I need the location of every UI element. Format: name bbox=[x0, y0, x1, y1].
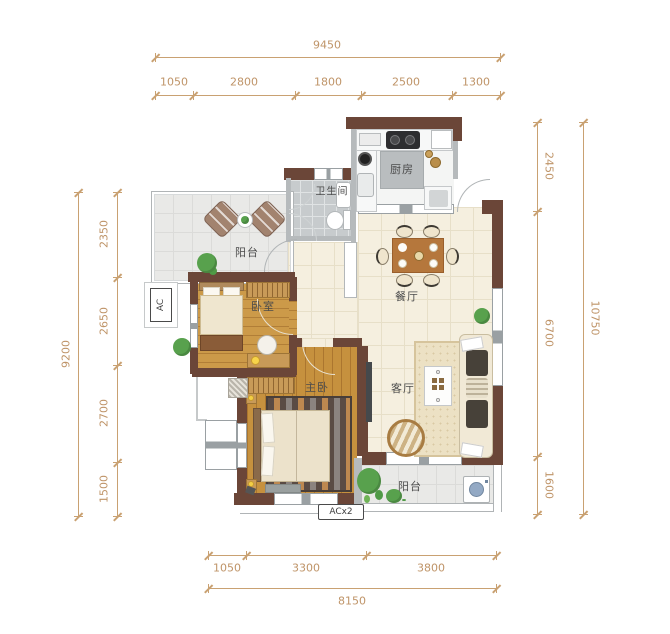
dim-line-bottom-total bbox=[208, 588, 496, 589]
plant bbox=[173, 338, 191, 356]
desk-lamp bbox=[251, 356, 260, 365]
wall bbox=[234, 493, 274, 505]
sofa-cushion bbox=[466, 350, 488, 376]
dining-chair bbox=[446, 248, 459, 265]
toilet-bowl bbox=[326, 211, 344, 230]
dim-label: 1500 bbox=[98, 475, 111, 503]
doormat bbox=[228, 378, 248, 398]
dim-label-bottom-total: 8150 bbox=[338, 595, 366, 608]
desk-chair bbox=[257, 335, 277, 355]
door-arc-kitchen bbox=[457, 179, 490, 212]
centerpiece-icon bbox=[414, 251, 424, 261]
sofa-cushion bbox=[466, 378, 488, 398]
dim-label: 2350 bbox=[98, 220, 111, 248]
bed-body bbox=[200, 295, 243, 335]
round-lounge-chair bbox=[387, 419, 425, 457]
dining-chair bbox=[423, 225, 440, 238]
dining-chair bbox=[423, 274, 440, 287]
wall bbox=[188, 272, 295, 282]
acx2-label: ACx2 bbox=[329, 507, 352, 517]
dim-label: 3300 bbox=[292, 562, 320, 575]
dim-label-left-total: 9200 bbox=[60, 340, 73, 368]
dim-label: 2650 bbox=[98, 307, 111, 335]
plant bbox=[357, 468, 381, 494]
master-bed-pillow bbox=[261, 446, 275, 477]
room-label-master: 主卧 bbox=[305, 379, 329, 395]
tv-panel bbox=[366, 362, 372, 422]
tv-cabinet bbox=[265, 484, 301, 493]
dim-label: 1800 bbox=[314, 76, 342, 89]
window bbox=[492, 288, 503, 386]
plate-icon bbox=[429, 259, 438, 268]
dining-chair bbox=[396, 274, 413, 287]
dim-label: 3800 bbox=[417, 562, 445, 575]
dim-label: 1050 bbox=[160, 76, 188, 89]
master-bed-pillow bbox=[261, 413, 275, 444]
window bbox=[237, 423, 247, 468]
wall bbox=[346, 117, 462, 129]
floor-plan: 阳台 卫生间 厨房 餐厅 卧室 主卧 客厅 阳台 AC ACx2 9450 10… bbox=[0, 0, 670, 634]
dim-line-bottom-segments bbox=[208, 555, 496, 556]
wall bbox=[289, 277, 297, 301]
dim-line-right-total bbox=[583, 122, 584, 514]
plant bbox=[241, 216, 249, 224]
dining-chair bbox=[376, 248, 389, 265]
dim-label: 2700 bbox=[98, 399, 111, 427]
washer-dial-icon bbox=[485, 480, 488, 483]
nightstand-lamp bbox=[248, 395, 254, 401]
wall bbox=[190, 282, 198, 304]
dim-line-left-segments bbox=[117, 192, 118, 516]
dim-label: 2500 bbox=[392, 76, 420, 89]
acx2-box: ACx2 bbox=[318, 504, 364, 520]
bed-blanket bbox=[200, 335, 243, 351]
room-label-bathroom: 卫生间 bbox=[316, 183, 349, 198]
balcony-right-railing bbox=[493, 458, 502, 512]
tray-icon bbox=[439, 385, 444, 390]
wardrobe bbox=[246, 282, 290, 298]
wall bbox=[289, 335, 297, 375]
dim-line-top-segments bbox=[155, 95, 500, 96]
fridge bbox=[431, 130, 452, 149]
exterior-step-contour bbox=[240, 504, 318, 514]
room-label-dining: 餐厅 bbox=[395, 288, 419, 304]
dim-line-left-total bbox=[78, 192, 79, 516]
counter-inset bbox=[429, 190, 448, 207]
dim-label: 1050 bbox=[213, 562, 241, 575]
room-label-balcony-bottom: 阳台 bbox=[398, 478, 422, 494]
dim-label: 2800 bbox=[230, 76, 258, 89]
balcony-bottom-railing bbox=[356, 503, 496, 512]
dining-table bbox=[392, 238, 444, 273]
cup-icon bbox=[436, 370, 440, 374]
exterior-contour-line bbox=[196, 377, 198, 421]
washing-machine bbox=[463, 476, 490, 503]
tray-icon bbox=[432, 378, 437, 383]
cup-icon bbox=[436, 398, 440, 402]
toilet-tank bbox=[343, 210, 351, 230]
hall-cabinet bbox=[344, 242, 357, 298]
dim-label-right-total: 10750 bbox=[589, 301, 602, 336]
wok-icon bbox=[358, 152, 372, 166]
dining-chair bbox=[396, 225, 413, 238]
plant bbox=[474, 308, 490, 324]
ac-box: AC bbox=[150, 288, 172, 322]
washer-drum-icon bbox=[469, 482, 484, 497]
plate-icon bbox=[429, 243, 438, 252]
dim-line-top-total bbox=[155, 57, 500, 58]
burner-icon bbox=[390, 135, 400, 145]
dim-label: 6700 bbox=[543, 319, 556, 347]
bay-window bbox=[205, 420, 237, 470]
coffee-table bbox=[424, 366, 452, 406]
window bbox=[190, 304, 198, 348]
dim-label: 2450 bbox=[543, 152, 556, 180]
wall bbox=[492, 386, 503, 456]
tray-icon bbox=[432, 385, 437, 390]
room-label-bedroom: 卧室 bbox=[251, 298, 275, 314]
window bbox=[314, 168, 343, 180]
wall bbox=[192, 368, 296, 377]
condiment-icon bbox=[430, 157, 441, 168]
room-label-balcony-top: 阳台 bbox=[235, 244, 259, 260]
cooktop bbox=[386, 131, 420, 149]
kitchen-sink bbox=[357, 173, 374, 197]
bed-fold-line bbox=[296, 411, 297, 481]
dim-label-top-total: 9450 bbox=[313, 39, 341, 52]
plant bbox=[197, 253, 217, 273]
wall-partition bbox=[453, 141, 458, 179]
sofa-cushion bbox=[466, 400, 488, 428]
room-label-kitchen: 厨房 bbox=[390, 161, 414, 177]
dish-rack bbox=[359, 133, 381, 146]
master-wardrobe bbox=[247, 377, 295, 394]
dim-label: 1300 bbox=[462, 76, 490, 89]
plate-icon bbox=[398, 243, 407, 252]
wall bbox=[492, 212, 503, 288]
plate-icon bbox=[398, 259, 407, 268]
room-label-living: 客厅 bbox=[391, 380, 415, 396]
dim-label: 1600 bbox=[543, 471, 556, 499]
burner-icon bbox=[405, 135, 415, 145]
kitchen-lower-counter bbox=[424, 186, 452, 210]
tray-icon bbox=[439, 378, 444, 383]
ac-label: AC bbox=[156, 299, 166, 311]
master-bed-headboard bbox=[253, 408, 261, 482]
